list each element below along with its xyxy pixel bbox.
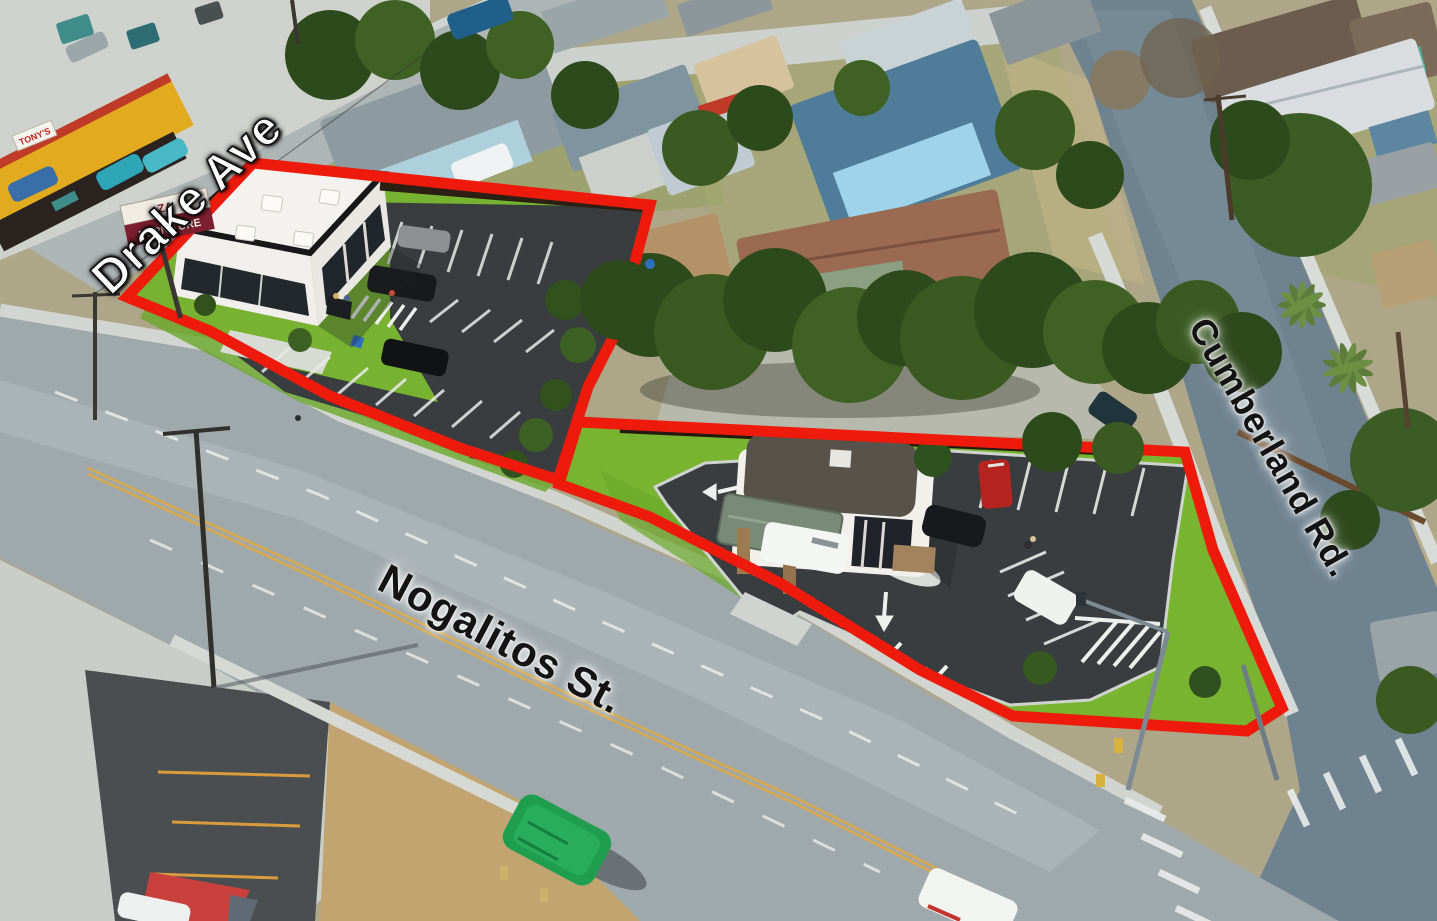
hvac-unit xyxy=(261,195,283,213)
signal-head xyxy=(1076,592,1086,606)
roof-vent xyxy=(829,449,851,467)
tree xyxy=(1189,666,1221,698)
hvac-unit xyxy=(293,231,314,248)
aerial-property-photo: TONY'S xyxy=(0,0,1437,921)
blue-barrel xyxy=(645,259,655,269)
pedestrian-signal xyxy=(1114,738,1123,753)
tree xyxy=(1023,651,1057,685)
hvac-unit xyxy=(235,225,256,242)
hvac-unit xyxy=(319,189,340,206)
stone-wainscot xyxy=(892,545,936,574)
pedestrian-signal xyxy=(1096,774,1105,787)
aerial-scene: TONY'S xyxy=(0,0,1437,921)
scooter xyxy=(1024,541,1032,549)
